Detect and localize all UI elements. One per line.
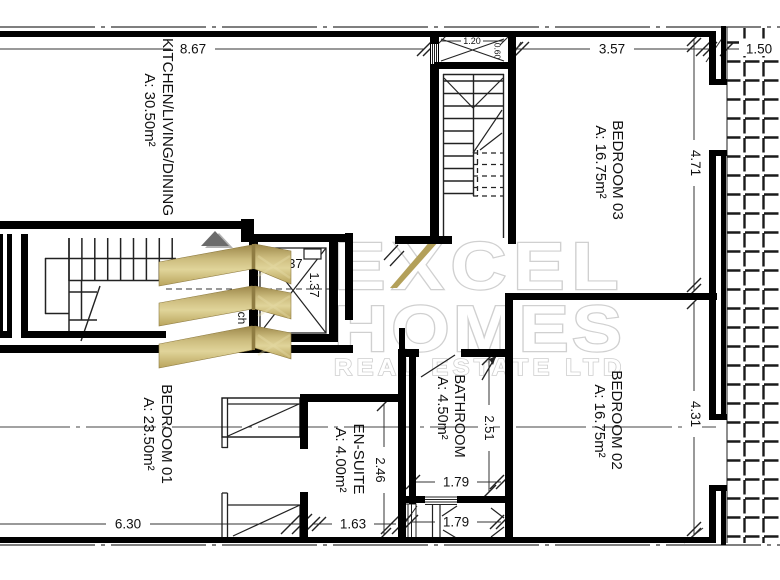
svg-text:1.79: 1.79 xyxy=(443,515,469,530)
svg-text:BEDROOM 01: BEDROOM 01 xyxy=(158,384,175,484)
svg-text:1.50: 1.50 xyxy=(746,42,772,57)
svg-text:A: 23.50m²: A: 23.50m² xyxy=(140,397,157,470)
svg-text:BEDROOM 02: BEDROOM 02 xyxy=(608,370,625,470)
svg-text:BATHROOM: BATHROOM xyxy=(451,374,467,457)
svg-text:3.57: 3.57 xyxy=(599,42,625,57)
svg-text:8.67: 8.67 xyxy=(180,42,206,57)
svg-text:6.30: 6.30 xyxy=(115,517,141,532)
svg-text:1.63: 1.63 xyxy=(340,517,366,532)
svg-text:REAL ESTATE LTD: REAL ESTATE LTD xyxy=(334,355,626,381)
svg-text:BEDROOM 03: BEDROOM 03 xyxy=(609,120,626,220)
svg-text:4.31: 4.31 xyxy=(688,401,703,427)
svg-text:2.51: 2.51 xyxy=(482,415,497,440)
svg-text:1.37: 1.37 xyxy=(307,272,322,297)
svg-text:2.46: 2.46 xyxy=(373,457,388,482)
svg-text:1.20: 1.20 xyxy=(463,36,481,46)
svg-text:ch: ch xyxy=(235,312,249,325)
svg-text:KITCHEN/LIVING/DINING: KITCHEN/LIVING/DINING xyxy=(159,38,176,216)
svg-text:4.71: 4.71 xyxy=(688,150,703,176)
svg-text:A: 16.75m²: A: 16.75m² xyxy=(591,384,608,457)
svg-text:A: 4.50m²: A: 4.50m² xyxy=(434,376,450,439)
svg-text:A: 30.50m²: A: 30.50m² xyxy=(141,73,158,146)
svg-text:A: 16.75m²: A: 16.75m² xyxy=(592,125,609,198)
svg-text:A: 4.00m²: A: 4.00m² xyxy=(332,427,349,492)
svg-text:1.79: 1.79 xyxy=(443,475,469,490)
svg-text:EN-SUITE: EN-SUITE xyxy=(350,424,367,495)
